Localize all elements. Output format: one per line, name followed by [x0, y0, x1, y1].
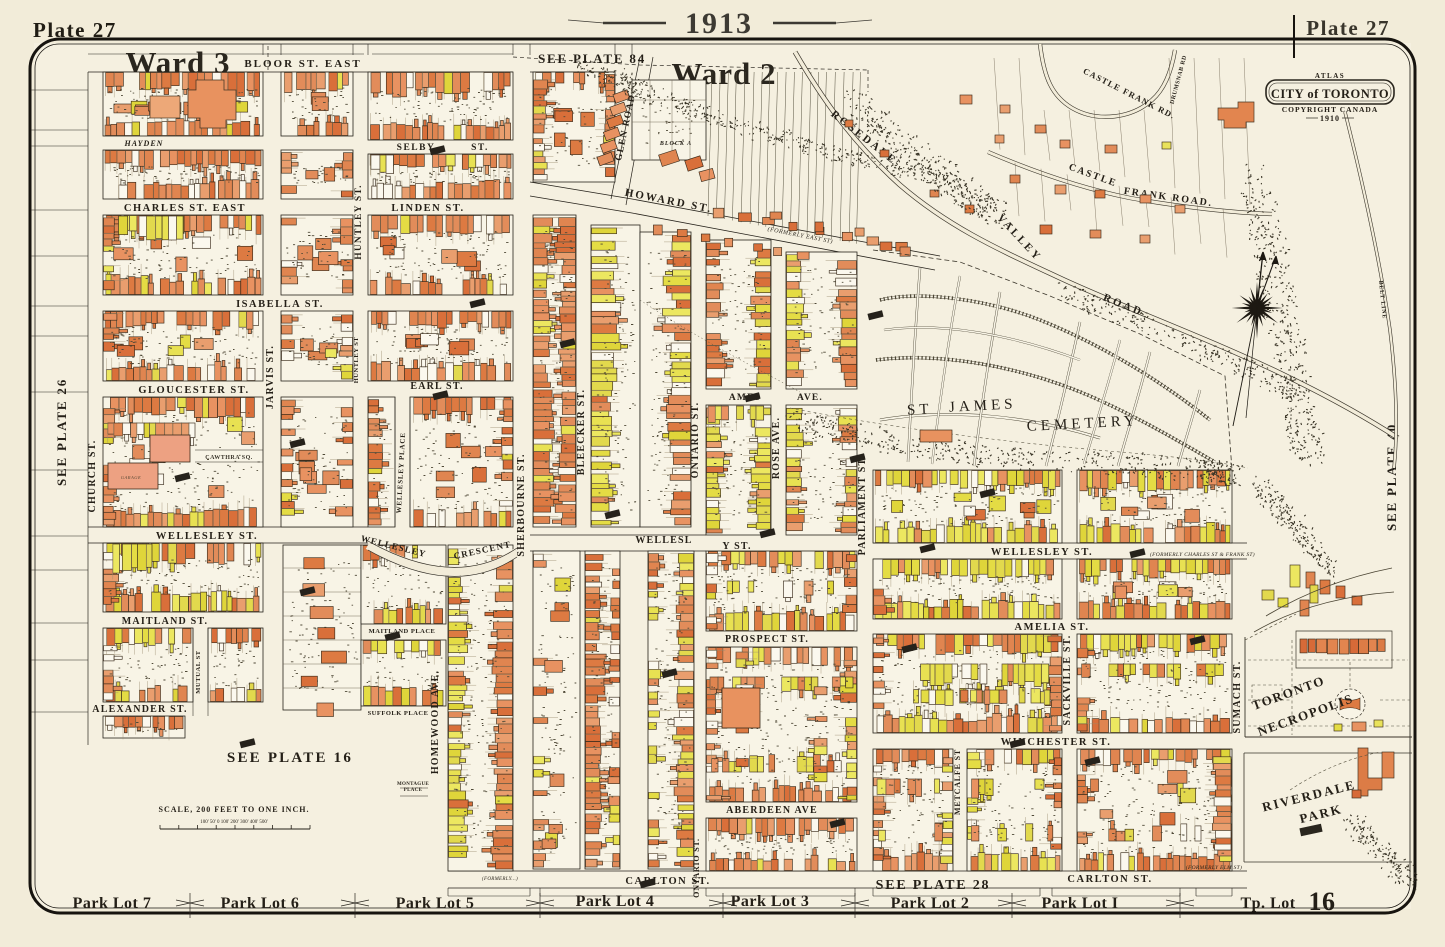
svg-text:PROSPECT ST.: PROSPECT ST. — [725, 634, 809, 645]
svg-text:CHURCH ST.: CHURCH ST. — [87, 440, 98, 513]
svg-text:Park Lot 4: Park Lot 4 — [576, 893, 655, 910]
svg-text:SACKVILLE ST.: SACKVILLE ST. — [1062, 635, 1073, 726]
svg-text:PARLIAMENT ST.: PARLIAMENT ST. — [857, 455, 868, 556]
svg-text:CARLTON ST.: CARLTON ST. — [1067, 874, 1152, 885]
svg-text:BLOCK A: BLOCK A — [659, 141, 692, 147]
svg-text:CITY of TORONTO: CITY of TORONTO — [1271, 87, 1389, 101]
svg-text:Park Lot I: Park Lot I — [1042, 895, 1119, 912]
svg-text:ST.: ST. — [471, 143, 489, 153]
svg-text:SHERBOURNE ST.: SHERBOURNE ST. — [516, 453, 527, 556]
svg-text:WELLESL: WELLESL — [635, 535, 692, 546]
svg-text:Park Lot 3: Park Lot 3 — [731, 893, 810, 910]
svg-text:ONTARIO ST.: ONTARIO ST. — [690, 402, 701, 479]
svg-text:Plate 27: Plate 27 — [33, 18, 117, 42]
svg-text:Park Lot 2: Park Lot 2 — [891, 895, 970, 912]
svg-text:ATLAS: ATLAS — [1315, 72, 1345, 80]
svg-text:ROSE AVE.: ROSE AVE. — [771, 417, 782, 479]
svg-text:AVE.: AVE. — [797, 393, 823, 403]
svg-text:GLOUCESTER ST.: GLOUCESTER ST. — [138, 385, 249, 396]
svg-text:EARL ST.: EARL ST. — [410, 381, 463, 392]
svg-text:CAWTHRA SQ.: CAWTHRA SQ. — [205, 455, 253, 461]
svg-text:BLOOR ST. EAST: BLOOR ST. EAST — [244, 58, 361, 70]
svg-text:ALEXANDER ST.: ALEXANDER ST. — [92, 704, 187, 715]
svg-text:SCALE, 200 FEET TO ONE INCH.: SCALE, 200 FEET TO ONE INCH. — [159, 805, 310, 814]
svg-text:SEE PLATE 16: SEE PLATE 16 — [227, 750, 353, 766]
svg-text:16: 16 — [1309, 887, 1336, 916]
svg-text:1910: 1910 — [1320, 114, 1340, 123]
svg-text:HAYDEN: HAYDEN — [124, 139, 164, 148]
svg-text:AMELIA ST.: AMELIA ST. — [1015, 622, 1090, 633]
svg-text:SUFFOLK PLACE: SUFFOLK PLACE — [368, 710, 429, 717]
svg-text:ONTARIO ST.: ONTARIO ST. — [692, 838, 701, 898]
svg-text:BLEECKER ST.: BLEECKER ST. — [576, 389, 587, 475]
svg-text:SEE PLATE 28: SEE PLATE 28 — [876, 878, 991, 893]
svg-text:MUTUAL ST: MUTUAL ST — [195, 650, 202, 694]
svg-text:100' 50' 0 100': 100' 50' 0 100' 200' 300' 400' 500' — [200, 820, 268, 825]
svg-text:CHARLES ST. EAST: CHARLES ST. EAST — [124, 203, 246, 214]
svg-text:GARAGE: GARAGE — [121, 475, 142, 480]
svg-text:METCALFE ST: METCALFE ST — [953, 749, 962, 815]
svg-text:Park Lot 6: Park Lot 6 — [221, 895, 300, 912]
svg-text:HUNTLEY ST.: HUNTLEY ST. — [354, 184, 364, 260]
svg-text:ISABELLA ST.: ISABELLA ST. — [236, 299, 324, 310]
svg-text:(FORMERLY CHARLES ST & FRANK S: (FORMERLY CHARLES ST & FRANK ST) — [1150, 551, 1255, 558]
svg-text:WELLESLEY ST.: WELLESLEY ST. — [991, 547, 1093, 558]
svg-text:PLACE: PLACE — [404, 788, 423, 793]
svg-text:Tp. Lot: Tp. Lot — [1240, 895, 1295, 912]
svg-text:SUMACH ST.: SUMACH ST. — [1232, 661, 1243, 734]
svg-text:Y ST.: Y ST. — [722, 541, 751, 552]
svg-text:MAITLAND ST.: MAITLAND ST. — [122, 616, 208, 627]
svg-text:COPYRIGHT CANADA: COPYRIGHT CANADA — [1282, 105, 1379, 114]
svg-text:Plate 27: Plate 27 — [1306, 16, 1390, 40]
svg-text:HUNTLEY ST: HUNTLEY ST — [353, 337, 360, 384]
svg-text:(FORMERLY ELM ST): (FORMERLY ELM ST) — [1186, 864, 1242, 871]
svg-text:LINDEN ST.: LINDEN ST. — [391, 203, 464, 214]
svg-text:JARVIS ST.: JARVIS ST. — [265, 345, 276, 409]
svg-text:(FORMERLY...): (FORMERLY...) — [482, 877, 518, 882]
svg-text:Park Lot 7: Park Lot 7 — [73, 895, 152, 912]
svg-text:Park Lot 5: Park Lot 5 — [396, 895, 475, 912]
svg-text:ST: ST — [907, 401, 933, 418]
svg-text:WELLESLEY ST.: WELLESLEY ST. — [156, 531, 258, 542]
svg-text:MONTAGUE: MONTAGUE — [397, 782, 429, 787]
svg-text:MAITLAND PLACE: MAITLAND PLACE — [369, 628, 436, 635]
svg-text:SELBY: SELBY — [397, 143, 436, 153]
svg-text:1913: 1913 — [685, 7, 753, 40]
svg-text:SEE PLATE 84: SEE PLATE 84 — [538, 51, 646, 66]
svg-text:ABERDEEN AVE: ABERDEEN AVE — [726, 805, 818, 816]
svg-text:HOMEWOOD AVE.: HOMEWOOD AVE. — [430, 670, 441, 774]
